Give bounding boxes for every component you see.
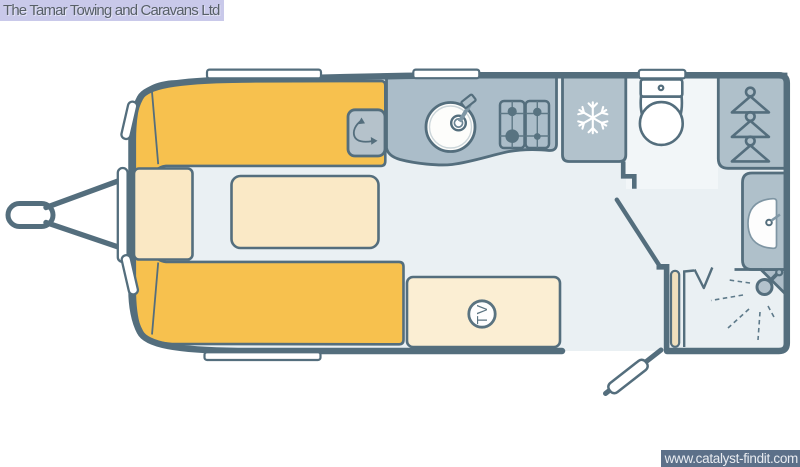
svg-text:TV: TV bbox=[475, 304, 491, 325]
